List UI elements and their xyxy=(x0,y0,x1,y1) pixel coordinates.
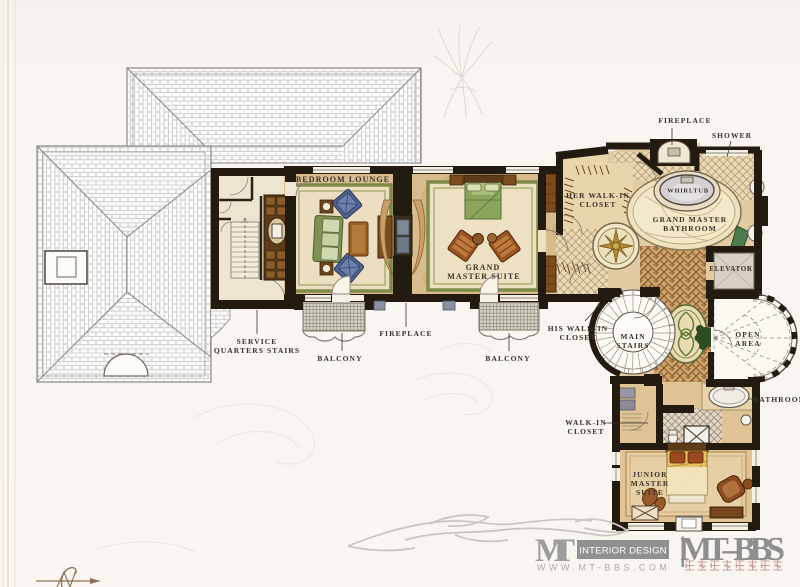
svg-text:SUITE: SUITE xyxy=(636,488,664,497)
svg-text:HER WALK-IN: HER WALK-IN xyxy=(566,191,630,200)
svg-text:GRAND MASTER: GRAND MASTER xyxy=(653,215,728,224)
svg-text:BATHROOM: BATHROOM xyxy=(663,224,717,233)
svg-text:WWW.MT-BBS.COM: WWW.MT-BBS.COM xyxy=(537,563,669,573)
svg-text:CLOSET: CLOSET xyxy=(559,333,596,342)
svg-text:FIREPLACE: FIREPLACE xyxy=(379,329,432,338)
svg-text:CLOSET: CLOSET xyxy=(567,427,604,436)
svg-text:HIS WALK-IN: HIS WALK-IN xyxy=(548,324,609,333)
svg-text:|MT–BBS: |MT–BBS xyxy=(679,531,785,568)
svg-text:JUNIOR: JUNIOR xyxy=(632,470,667,479)
svg-text:FIREPLACE: FIREPLACE xyxy=(658,116,711,125)
svg-text:MASTER: MASTER xyxy=(631,479,670,488)
svg-text:GRAND: GRAND xyxy=(466,263,501,272)
svg-text:SHOWER: SHOWER xyxy=(712,131,752,140)
svg-text:BALCONY: BALCONY xyxy=(317,354,362,363)
svg-text:MASTER SUITE: MASTER SUITE xyxy=(447,272,520,281)
svg-text:INTERIOR DESIGN: INTERIOR DESIGN xyxy=(579,546,666,557)
svg-text:MAIN: MAIN xyxy=(620,332,645,341)
svg-text:ELEVATOR: ELEVATOR xyxy=(709,265,753,273)
svg-text:BEDROOM LOUNGE: BEDROOM LOUNGE xyxy=(296,175,390,184)
svg-text:WALK-IN: WALK-IN xyxy=(565,418,606,427)
svg-text:QUARTERS STAIRS: QUARTERS STAIRS xyxy=(214,346,300,355)
svg-text:OPEN: OPEN xyxy=(735,330,760,339)
svg-text:SERVICE: SERVICE xyxy=(237,337,278,346)
svg-text:BATHROOM: BATHROOM xyxy=(753,395,800,404)
svg-text:WHIRLTUB: WHIRLTUB xyxy=(667,188,708,195)
svg-text:CLOSET: CLOSET xyxy=(579,200,616,209)
svg-text:AREA: AREA xyxy=(735,339,761,348)
svg-text:STAIRS: STAIRS xyxy=(616,341,649,350)
svg-text:BALCONY: BALCONY xyxy=(485,354,530,363)
